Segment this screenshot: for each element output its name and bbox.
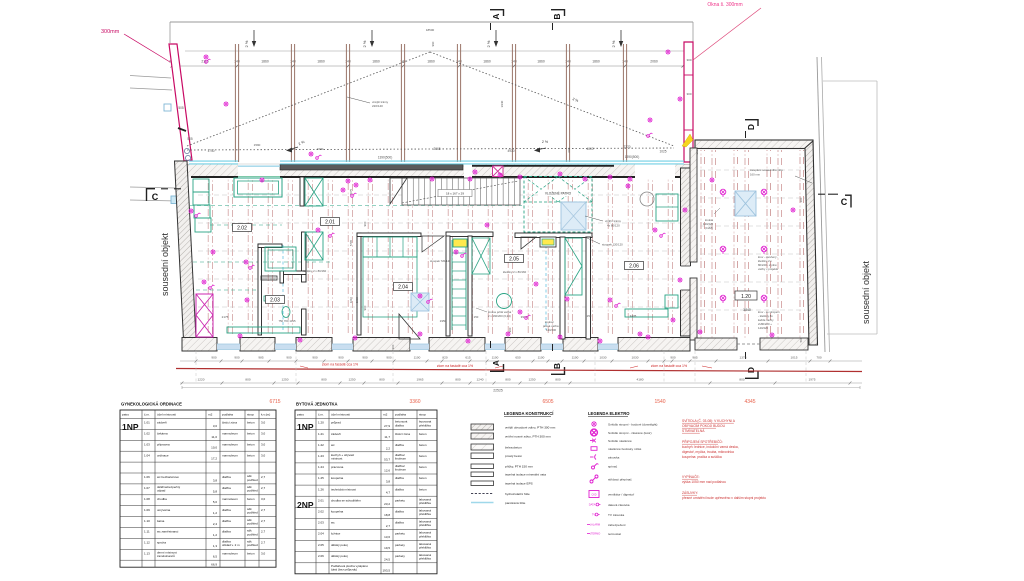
svg-text:ZÁSUVKY:: ZÁSUVKY:	[682, 491, 698, 495]
svg-text:stoupek 120/120: stoupek 120/120	[602, 243, 623, 247]
svg-text:PŘIPOJENÍ SPOTŘEBIČŮ:: PŘIPOJENÍ SPOTŘEBIČŮ:	[682, 439, 723, 444]
svg-text:čekárna: čekárna	[157, 432, 168, 436]
svg-text:beton: beton	[247, 432, 255, 436]
svg-text:parkety: parkety	[395, 543, 405, 547]
svg-text:LEGENDA ELEKTRO: LEGENDA ELEKTRO	[588, 411, 630, 416]
svg-text:7370: 7370	[623, 145, 630, 149]
svg-text:D: D	[746, 367, 756, 373]
svg-text:1.12: 1.12	[144, 541, 150, 545]
svg-text:1.04: 1.04	[144, 453, 150, 457]
svg-text:700: 700	[816, 356, 821, 360]
svg-text:parkety: parkety	[395, 498, 405, 502]
svg-text:dlažba: dlažba	[222, 475, 231, 479]
svg-text:m2: m2	[383, 413, 388, 417]
svg-text:č.m.: č.m.	[144, 413, 150, 417]
svg-text:A: A	[491, 13, 501, 19]
svg-text:marmoleum: marmoleum	[222, 497, 238, 501]
svg-text:1600: 1600	[317, 147, 324, 151]
svg-text:wc: wc	[331, 443, 335, 447]
svg-text:19,5: 19,5	[384, 546, 390, 550]
svg-text:900: 900	[386, 356, 391, 360]
svg-text:3,0: 3,0	[213, 424, 218, 428]
svg-text:beton: beton	[419, 487, 427, 491]
svg-text:13,6: 13,6	[384, 535, 390, 539]
svg-text:železobeton: železobeton	[505, 445, 522, 449]
svg-text:beton: beton	[419, 454, 427, 458]
svg-text:wc bezbariérové: wc bezbariérové	[157, 475, 179, 479]
svg-text:zádveří: zádveří	[157, 421, 167, 425]
svg-text:220/140: 220/140	[372, 104, 383, 108]
svg-text:4180: 4180	[637, 378, 644, 382]
svg-text:spínač: spínač	[608, 464, 618, 468]
svg-text:B: B	[552, 13, 562, 19]
svg-text:šatna: šatna	[157, 519, 165, 523]
svg-text:2 x 160/200 (6,24): 2 x 160/200 (6,24)	[488, 314, 511, 318]
svg-text:505: 505	[187, 137, 193, 141]
svg-text:1.01: 1.01	[144, 421, 150, 425]
svg-text:zlom na fasádě cca 1%: zlom na fasádě cca 1%	[437, 364, 473, 368]
svg-text:marmoleum: marmoleum	[222, 432, 238, 436]
svg-text:1590: 1590	[254, 143, 261, 147]
svg-text:hydroizolační fólie: hydroizolační fólie	[505, 492, 530, 496]
svg-text:umývárna: umývárna	[157, 508, 171, 512]
svg-text:1.20: 1.20	[741, 294, 751, 300]
svg-text:615: 615	[465, 356, 470, 360]
svg-text:1.03: 1.03	[144, 443, 150, 447]
svg-text:sousední objekt: sousední objekt	[861, 260, 871, 324]
svg-text:(C2M): (C2M)	[705, 226, 713, 230]
svg-text:LEGENDA KONSTRUKCÍ: LEGENDA KONSTRUKCÍ	[504, 411, 554, 416]
svg-text:1100: 1100	[492, 356, 499, 360]
svg-text:překližka: překližka	[419, 523, 431, 527]
svg-text:2.01: 2.01	[318, 498, 324, 502]
svg-text:2.05: 2.05	[318, 543, 324, 547]
svg-text:koupelna: pračka a sušička: koupelna: pračka a sušička	[682, 455, 722, 459]
svg-text:patro: patro	[122, 413, 129, 417]
svg-text:k.v.(m): k.v.(m)	[261, 413, 270, 417]
svg-text:pracovna: pracovna	[331, 465, 344, 469]
svg-text:překližka: překližka	[419, 557, 431, 561]
svg-text:2,7: 2,7	[261, 530, 266, 534]
svg-text:dlažba: dlažba	[222, 530, 231, 534]
svg-text:vnitřní nosné zdivo, PTH 300 m: vnitřní nosné zdivo, PTH 300 mm	[505, 434, 551, 438]
svg-text:1250: 1250	[529, 378, 536, 382]
svg-text:800: 800	[505, 378, 510, 382]
svg-text:Okna š. 300mm: Okna š. 300mm	[707, 2, 742, 8]
svg-text:2.01: 2.01	[325, 220, 335, 226]
svg-text:4930: 4930	[507, 149, 514, 153]
svg-text:podlaha: podlaha	[222, 413, 233, 417]
svg-text:2065: 2065	[433, 147, 440, 151]
svg-text:m2: m2	[208, 413, 213, 417]
svg-text:překližka: překližka	[419, 534, 431, 538]
svg-text:1860: 1860	[372, 60, 380, 64]
svg-text:3840: 3840	[743, 308, 751, 312]
svg-text:2.06: 2.06	[318, 554, 324, 558]
svg-text:820: 820	[442, 356, 447, 360]
svg-text:4,7: 4,7	[386, 491, 391, 495]
svg-text:1015: 1015	[791, 356, 798, 360]
svg-text:překližka: překližka	[419, 545, 431, 549]
svg-text:1.21: 1.21	[318, 432, 324, 436]
svg-text:tepelná izolace minerální vata: tepelná izolace minerální vata	[505, 473, 546, 477]
svg-text:18,8: 18,8	[384, 513, 390, 517]
svg-text:1,2: 1,2	[213, 533, 218, 537]
svg-text:patro: patro	[297, 413, 304, 417]
svg-text:podhled: podhled	[247, 521, 258, 525]
svg-text:1025: 1025	[659, 150, 666, 154]
svg-text:2060: 2060	[650, 60, 658, 64]
svg-text:1930: 1930	[355, 296, 359, 303]
svg-text:1NP: 1NP	[297, 422, 314, 432]
svg-text:500: 500	[799, 337, 803, 342]
svg-text:překližka: překližka	[419, 512, 431, 516]
svg-text:27,9: 27,9	[384, 424, 390, 428]
svg-text:650: 650	[515, 356, 520, 360]
svg-text:beton: beton	[419, 476, 427, 480]
svg-text:SVÍTIDLA (Č. 03-08): V KUCHYNI: SVÍTIDLA (Č. 03-08): V KUCHYNI A	[682, 418, 736, 423]
svg-text:750 700 1315: 750 700 1315	[278, 319, 296, 323]
svg-text:(ALARM: (ALARM	[590, 523, 600, 527]
svg-text:1390(500): 1390(500)	[625, 155, 640, 159]
svg-text:kleštiny 2 x 80/160: kleštiny 2 x 80/160	[303, 269, 327, 273]
svg-text:150: 150	[587, 314, 592, 318]
svg-text:2,7: 2,7	[261, 475, 266, 479]
svg-text:VLOŽENÉ PATRO: VLOŽENÉ PATRO	[545, 191, 572, 196]
svg-text:2,7: 2,7	[261, 541, 266, 545]
svg-text:parkety: parkety	[395, 532, 405, 536]
svg-text:2,7: 2,7	[386, 524, 391, 528]
svg-text:1250: 1250	[282, 378, 289, 382]
svg-text:3,0: 3,0	[261, 443, 266, 447]
svg-text:(TERMO: (TERMO	[590, 532, 600, 536]
svg-text:dlažba: dlažba	[395, 476, 404, 480]
svg-text:2,7: 2,7	[261, 486, 266, 490]
svg-text:1950: 1950	[440, 319, 447, 323]
svg-text:OBÝVACÍM POKOJI BUDOU: OBÝVACÍM POKOJI BUDOU	[682, 424, 726, 428]
svg-text:4345: 4345	[744, 399, 755, 405]
svg-text:990: 990	[431, 41, 435, 46]
svg-text:tepelná izolace EPS: tepelná izolace EPS	[505, 482, 533, 486]
svg-text:DATA: DATA	[589, 503, 596, 507]
svg-text:6,5: 6,5	[213, 555, 218, 559]
svg-text:koupelna: koupelna	[331, 476, 344, 480]
svg-text:160 mm: 160 mm	[750, 173, 761, 177]
svg-text:24,5: 24,5	[384, 557, 390, 561]
svg-text:2175: 2175	[222, 315, 229, 319]
svg-text:300: 300	[686, 92, 691, 96]
svg-text:zaměstnanců: zaměstnanců	[157, 554, 175, 558]
svg-text:505: 505	[178, 106, 184, 110]
svg-text:1860: 1860	[427, 60, 435, 64]
svg-text:chodba se schodištěm: chodba se schodištěm	[331, 498, 361, 502]
svg-text:kleštiny 2 x 80/160: kleštiny 2 x 80/160	[503, 270, 527, 274]
svg-text:technická místnost: technická místnost	[331, 487, 356, 491]
svg-text:dlažba: dlažba	[222, 519, 231, 523]
svg-text:beton: beton	[419, 432, 427, 436]
svg-text:čistící zóna: čistící zóna	[395, 432, 410, 436]
svg-text:podhled: podhled	[247, 489, 258, 493]
svg-text:1240: 1240	[477, 378, 484, 382]
svg-text:3360: 3360	[409, 399, 420, 405]
svg-text:1610: 1610	[349, 296, 353, 303]
svg-text:1.24: 1.24	[318, 465, 324, 469]
svg-text:obklad v. 2 m: obklad v. 2 m	[222, 543, 240, 547]
svg-text:stoupek 720/120: stoupek 720/120	[430, 259, 451, 263]
svg-text:2.04: 2.04	[398, 285, 408, 291]
svg-text:podhled: podhled	[247, 511, 258, 515]
svg-text:3,0: 3,0	[261, 432, 266, 436]
svg-text:2 %: 2 %	[542, 140, 549, 144]
svg-text:3,8: 3,8	[213, 478, 218, 482]
svg-text:1,2: 1,2	[213, 511, 218, 515]
svg-text:1100: 1100	[572, 356, 579, 360]
svg-text:1390(500): 1390(500)	[378, 156, 393, 160]
svg-text:C: C	[841, 197, 848, 207]
svg-text:1.20: 1.20	[318, 421, 324, 425]
svg-text:23,2: 23,2	[384, 502, 390, 506]
svg-text:STMÍVATELNÁ: STMÍVATELNÁ	[682, 429, 705, 433]
svg-text:sprcha: sprcha	[157, 541, 166, 545]
svg-text:zlom na fasádě cca 1%: zlom na fasádě cca 1%	[322, 363, 358, 367]
svg-text:800: 800	[739, 378, 744, 382]
svg-text:účel místnosti: účel místnosti	[157, 413, 176, 417]
svg-text:900: 900	[286, 356, 291, 360]
svg-text:11,0: 11,0	[211, 435, 217, 439]
svg-text:zásuvka: zásuvka	[608, 455, 620, 459]
svg-text:dětský pokoj: dětský pokoj	[331, 554, 348, 558]
svg-text:900: 900	[363, 221, 367, 226]
svg-text:3940: 3940	[500, 100, 504, 107]
svg-text:linoleum: linoleum	[395, 468, 407, 472]
svg-text:beton: beton	[247, 453, 255, 457]
svg-text:čistící zóna: čistící zóna	[222, 421, 237, 425]
svg-text:3,0: 3,0	[261, 497, 266, 501]
svg-text:2,4: 2,4	[213, 522, 218, 526]
svg-text:průjezd: průjezd	[331, 421, 341, 425]
svg-text:800: 800	[379, 378, 384, 382]
svg-text:příčky, PTH 150 mm: příčky, PTH 150 mm	[505, 465, 533, 469]
svg-text:vazby v projektu: vazby v projektu	[758, 267, 779, 271]
svg-text:dlažba: dlažba	[395, 510, 404, 514]
svg-text:podhled: podhled	[247, 543, 258, 547]
svg-text:účel místnosti: účel místnosti	[331, 413, 350, 417]
svg-text:1,3: 1,3	[213, 544, 218, 548]
svg-text:2.05: 2.05	[509, 257, 519, 263]
svg-text:odpad: odpad	[157, 489, 166, 493]
svg-text:digestoř, myčka, trouba, mikro: digestoř, myčka, trouba, mikrovlnka	[682, 450, 734, 454]
svg-text:D: D	[746, 124, 756, 130]
svg-text:kuchyň: lednice, indukční varn: kuchyň: lednice, indukční varná deska,	[682, 445, 739, 449]
svg-text:prostý beton: prostý beton	[505, 454, 522, 458]
svg-text:2NP: 2NP	[297, 500, 314, 510]
svg-text:části (bez průjezdu): části (bez průjezdu)	[331, 568, 357, 572]
svg-text:900: 900	[312, 356, 317, 360]
svg-text:1.02: 1.02	[144, 432, 150, 436]
svg-text:11,7: 11,7	[384, 435, 390, 439]
svg-text:vnější obvodové zdivo, PTH 300: vnější obvodové zdivo, PTH 300 mm	[505, 425, 556, 429]
svg-text:2.04: 2.04	[318, 532, 324, 536]
svg-text:900: 900	[338, 356, 343, 360]
svg-text:linoleum: linoleum	[395, 457, 407, 461]
svg-text:1.25: 1.25	[318, 476, 324, 480]
svg-text:1.06: 1.06	[144, 475, 150, 479]
svg-text:marmoleum: marmoleum	[222, 552, 238, 556]
svg-text:1100: 1100	[414, 356, 421, 360]
svg-text:1975: 1975	[809, 378, 816, 382]
svg-text:2.02: 2.02	[237, 226, 247, 232]
svg-text:900: 900	[363, 305, 367, 310]
svg-text:ložnice: ložnice	[331, 532, 341, 536]
svg-text:2,7: 2,7	[261, 519, 266, 523]
svg-text:53,7: 53,7	[384, 457, 390, 461]
svg-text:1.26: 1.26	[318, 487, 324, 491]
svg-text:5075: 5075	[349, 188, 353, 195]
svg-text:3,0: 3,0	[261, 421, 266, 425]
svg-text:přípravna: přípravna	[157, 443, 170, 447]
svg-text:podhled: podhled	[247, 478, 258, 482]
svg-text:koupelna: koupelna	[331, 510, 344, 514]
svg-text:termostat: termostat	[608, 532, 621, 536]
svg-text:300: 300	[799, 197, 803, 202]
svg-text:1375: 1375	[740, 356, 747, 360]
svg-text:překližka: překližka	[419, 501, 431, 505]
svg-text:Svítidlo nástěnné: Svítidlo nástěnné	[608, 439, 632, 443]
svg-text:6715: 6715	[269, 399, 280, 405]
svg-text:5,8: 5,8	[213, 489, 218, 493]
svg-text:1.11: 1.11	[144, 530, 150, 534]
svg-text:140/220: 140/220	[758, 326, 769, 330]
svg-text:zlom na fasádě cca 1%: zlom na fasádě cca 1%	[651, 364, 687, 368]
svg-text:zateplení sousedního štítu: zateplení sousedního štítu	[750, 168, 783, 172]
svg-text:1NP: 1NP	[122, 422, 139, 432]
svg-text:2 %: 2 %	[611, 40, 616, 47]
svg-text:900: 900	[211, 356, 216, 360]
svg-text:chodba: chodba	[157, 497, 167, 501]
svg-text:800: 800	[245, 378, 250, 382]
svg-text:2,2: 2,2	[386, 446, 391, 450]
svg-text:2.03: 2.03	[270, 298, 280, 304]
svg-text:překližka: překližka	[419, 423, 431, 427]
svg-text:dlažba: dlažba	[395, 423, 404, 427]
svg-text:dlažba: dlažba	[395, 487, 404, 491]
svg-text:10,0: 10,0	[211, 446, 217, 450]
svg-text:66,9: 66,9	[211, 563, 217, 567]
svg-text:2 %: 2 %	[362, 40, 367, 47]
svg-text:B: B	[552, 363, 562, 369]
svg-text:dlažba: dlažba	[222, 486, 231, 490]
svg-text:900: 900	[391, 344, 395, 349]
svg-text:1.22: 1.22	[318, 443, 324, 447]
svg-text:sousední objekt: sousední objekt	[160, 232, 170, 296]
svg-text:985: 985	[258, 356, 263, 360]
svg-text:3,8: 3,8	[386, 480, 391, 484]
svg-text:6505: 6505	[542, 399, 553, 405]
svg-text:parkety: parkety	[395, 554, 405, 558]
svg-text:900: 900	[670, 356, 675, 360]
svg-text:střídavý přepínač: střídavý přepínač	[608, 477, 632, 481]
svg-text:beton: beton	[247, 443, 255, 447]
svg-text:BYTOVÁ JEDNOTKA: BYTOVÁ JEDNOTKA	[296, 402, 338, 407]
svg-text:1.07: 1.07	[144, 486, 150, 490]
svg-text:podhled: podhled	[247, 532, 258, 536]
svg-text:2.03: 2.03	[318, 521, 324, 525]
svg-text:parotěsná fólie: parotěsná fólie	[505, 501, 526, 505]
svg-text:dlažba: dlažba	[395, 443, 404, 447]
svg-text:1030: 1030	[632, 356, 639, 360]
svg-text:GYNEKOLOGICKÁ ORDINACE: GYNEKOLOGICKÁ ORDINACE	[121, 402, 182, 407]
svg-text:300mm: 300mm	[101, 29, 120, 35]
svg-text:wc: wc	[331, 521, 335, 525]
svg-text:beton: beton	[419, 443, 427, 447]
svg-text:5765: 5765	[349, 239, 353, 246]
svg-text:2 %: 2 %	[486, 40, 491, 47]
svg-text:strop: strop	[419, 413, 426, 417]
svg-text:marmoleum: marmoleum	[222, 453, 238, 457]
svg-text:22525: 22525	[493, 389, 503, 393]
svg-text:č.m.: č.m.	[318, 413, 324, 417]
svg-text:výška 1050 mm nad podlahou: výška 1050 mm nad podlahou	[682, 480, 726, 484]
svg-text:1.10: 1.10	[144, 519, 150, 523]
svg-text:nástěnné bodovky nízké: nástěnné bodovky nízké	[608, 447, 642, 451]
svg-text:1860: 1860	[537, 60, 545, 64]
svg-text:300: 300	[686, 58, 691, 62]
svg-text:1220: 1220	[198, 378, 205, 382]
svg-text:2.06: 2.06	[629, 264, 639, 270]
svg-text:140/200: 140/200	[546, 328, 557, 332]
svg-text:4000: 4000	[586, 147, 593, 151]
svg-text:900: 900	[234, 356, 239, 360]
svg-text:podlaha: podlaha	[395, 413, 406, 417]
svg-text:datová zásuvka: datová zásuvka	[608, 503, 630, 507]
svg-text:místnost: místnost	[331, 457, 343, 461]
svg-text:VYPÍNAČE:: VYPÍNAČE:	[682, 474, 700, 479]
svg-text:1860: 1860	[483, 60, 491, 64]
svg-text:beton: beton	[247, 421, 255, 425]
svg-text:CKD: CKD	[591, 493, 596, 496]
svg-text:zabezpečení: zabezpečení	[608, 523, 626, 527]
svg-text:090: 090	[567, 147, 571, 152]
svg-text:strop: strop	[247, 413, 254, 417]
svg-text:TV zásuvka: TV zásuvka	[608, 513, 624, 517]
svg-text:1540: 1540	[654, 399, 665, 405]
svg-text:3435: 3435	[630, 314, 637, 318]
svg-text:5,0: 5,0	[213, 500, 218, 504]
svg-text:1.13: 1.13	[144, 552, 150, 556]
svg-text:1.23: 1.23	[318, 454, 324, 458]
svg-text:1100: 1100	[538, 356, 545, 360]
svg-text:1740: 1740	[207, 149, 214, 153]
svg-text:ventilátor / digestoř: ventilátor / digestoř	[608, 492, 635, 496]
svg-text:12,6: 12,6	[384, 469, 390, 473]
svg-text:800: 800	[555, 378, 560, 382]
svg-text:2,7: 2,7	[261, 508, 266, 512]
svg-text:1965: 1965	[417, 378, 424, 382]
svg-text:900: 900	[508, 327, 512, 332]
svg-text:marmoleum: marmoleum	[222, 443, 238, 447]
svg-text:C: C	[152, 192, 159, 202]
svg-text:150: 150	[474, 315, 479, 319]
svg-text:18500: 18500	[426, 28, 435, 32]
svg-text:beton: beton	[247, 552, 255, 556]
svg-text:beton: beton	[419, 465, 427, 469]
svg-text:beton: beton	[247, 497, 255, 501]
svg-text:1.08: 1.08	[144, 497, 150, 501]
svg-text:800: 800	[455, 378, 460, 382]
svg-text:1030: 1030	[600, 356, 607, 360]
svg-text:900: 900	[362, 356, 367, 360]
svg-text:zádveří: zádveří	[331, 432, 341, 436]
